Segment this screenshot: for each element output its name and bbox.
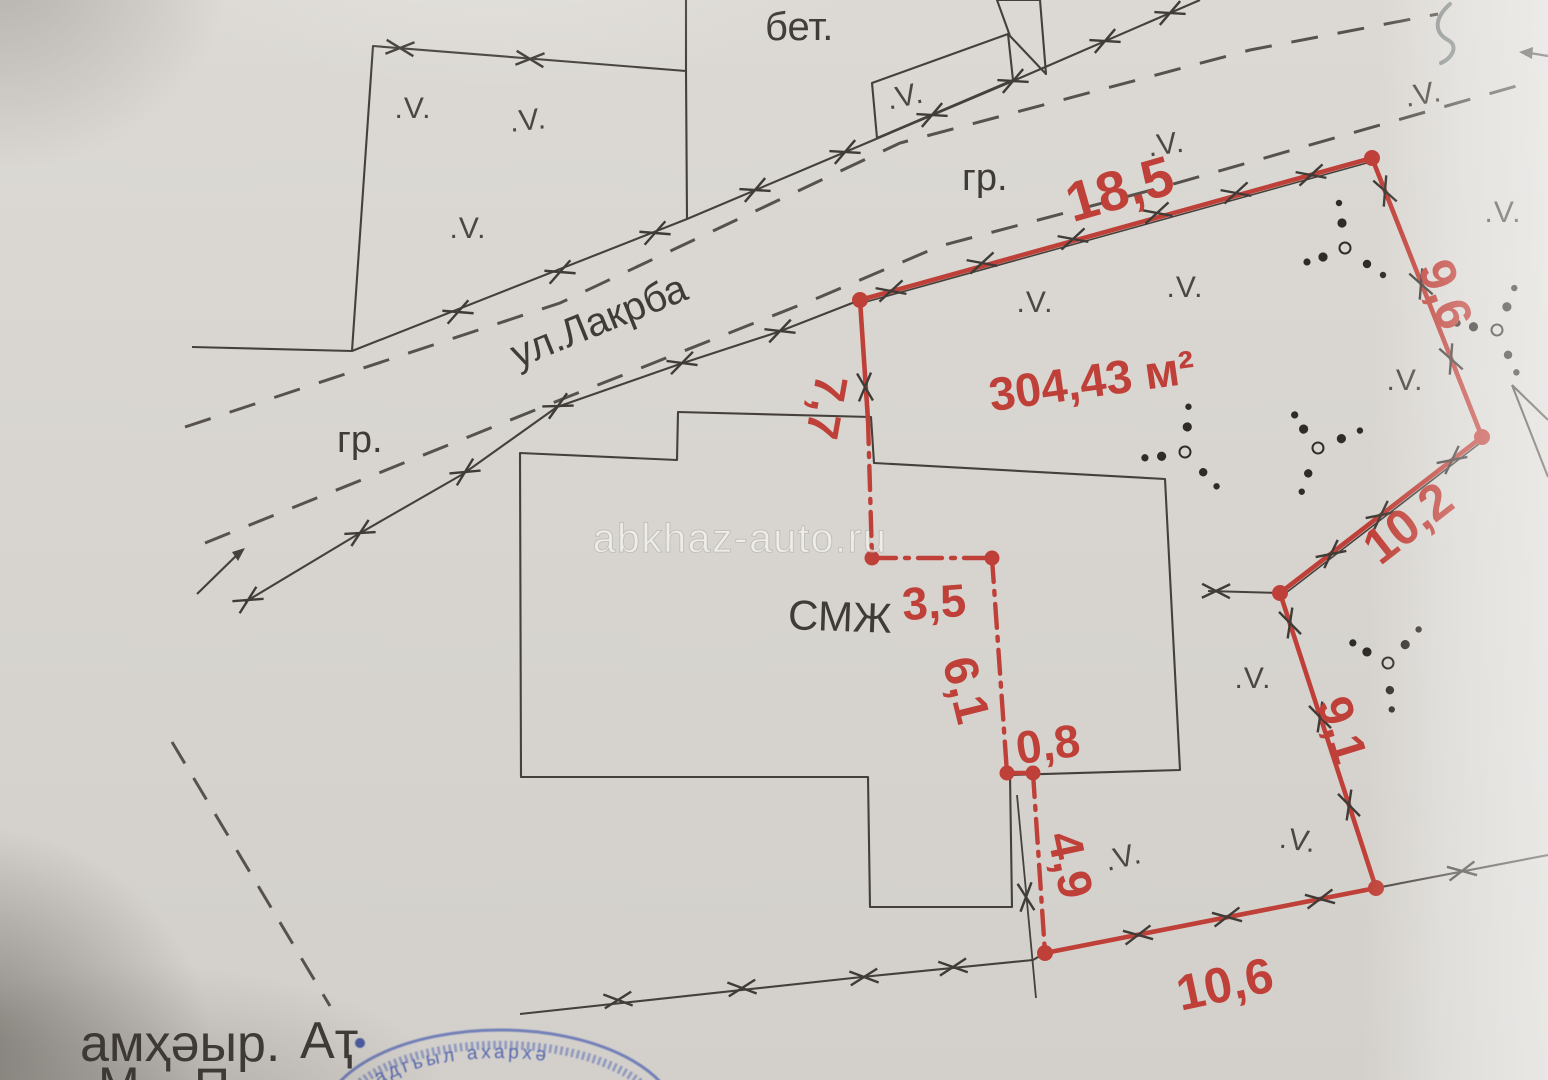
dim-inner-0-8: 0,8	[1013, 714, 1084, 774]
vegetation-mark-icon: .V.	[1485, 196, 1522, 229]
neighbor-building-corner-right	[1512, 385, 1548, 477]
dim-right-9-1: 9,1	[1306, 690, 1376, 769]
boundary-label-gr-left: гр.	[337, 419, 383, 461]
vegetation-mark-icon: .V.	[1277, 822, 1318, 860]
site-plan-drawing: .V. .V. .V. .V. .V. .V. .V. .V. .V. .V. …	[0, 0, 1548, 1080]
seal-letter-m: М	[98, 1057, 140, 1080]
seal-letter-p: П	[194, 1058, 230, 1080]
vegetation-mark-icon: .V.	[1017, 286, 1054, 319]
edge-arrow-right	[1519, 47, 1548, 59]
cadastral-plan-photo: .V. .V. .V. .V. .V. .V. .V. .V. .V. .V. …	[0, 0, 1548, 1080]
dim-inner-3-5: 3,5	[900, 574, 967, 630]
official-stamp: адгьыл ахархә	[322, 1030, 678, 1080]
footer-caption: амҳәыр. Аҭ М П	[80, 1012, 359, 1080]
fence-bottom	[520, 855, 1548, 1014]
vegetation-mark-icon: .V.	[1235, 662, 1272, 695]
vegetation-mark-icon: .V.	[395, 92, 432, 125]
dim-bottom-10-6: 10,6	[1171, 947, 1278, 1022]
vegetation-mark-icon: .V.	[1402, 75, 1444, 114]
dim-right-10-2: 10,2	[1352, 471, 1463, 575]
page-curl-mark	[1438, 4, 1454, 63]
vegetation-mark-icon: .V.	[1101, 837, 1145, 878]
building-label-smzh: СМЖ	[787, 591, 892, 642]
building-top-right-outline	[997, 0, 1046, 74]
parcel-dashdot-b	[992, 558, 1007, 773]
road-dashed-edges	[185, 14, 1520, 543]
parcel-west-solid	[860, 300, 868, 420]
buildings-and-fences	[192, 0, 1548, 1014]
neighbor-parcel-line-left	[192, 347, 352, 351]
road-dashed-north	[185, 14, 1438, 427]
vegetation-mark-icon: .V.	[884, 77, 927, 117]
fence-cross-symbols	[232, 1, 1477, 1008]
surface-label-bet: бет.	[765, 5, 833, 49]
dim-inner-4-9: 4,9	[1037, 827, 1103, 903]
vegetation-mark-icon: .V.	[1387, 364, 1424, 397]
vegetation-mark-icon: .V.	[450, 212, 487, 245]
footer-word-2: Аҭ	[300, 1012, 359, 1070]
stamp-ink-dot	[355, 1038, 365, 1048]
boundary-label-gr-right: гр.	[962, 157, 1008, 199]
parcel-area-label: 304,43 м²	[985, 340, 1198, 421]
vegetation-mark-icon: .V.	[508, 102, 548, 139]
watermark-text: abkhaz-auto.ru	[593, 515, 888, 561]
dashed-boundary-bottom-left	[172, 742, 330, 1006]
dim-inner-7-7: 7,7	[796, 371, 858, 443]
direction-arrow	[197, 548, 245, 594]
street-label: ул.Лакрба	[504, 266, 694, 377]
dim-inner-6-1: 6,1	[932, 651, 1000, 729]
vegetation-mark-icon: .V.	[1167, 271, 1204, 304]
